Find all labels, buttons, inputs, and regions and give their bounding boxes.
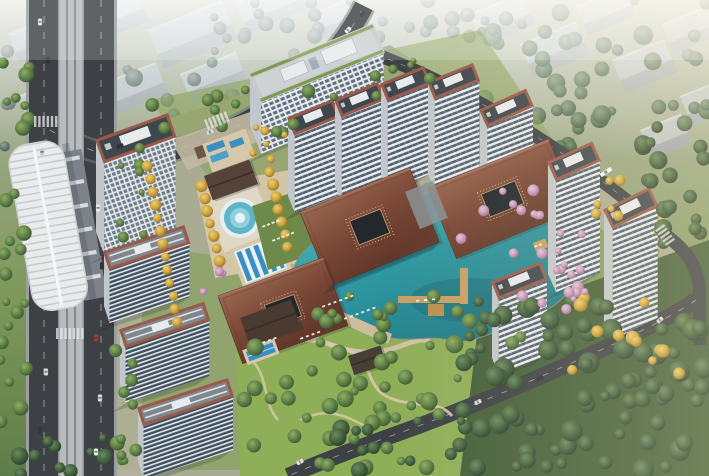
aerial-render-viewport [0, 0, 709, 476]
top-haze [0, 0, 709, 60]
sunlight-overlay [0, 0, 709, 476]
aerial-render [0, 0, 709, 476]
